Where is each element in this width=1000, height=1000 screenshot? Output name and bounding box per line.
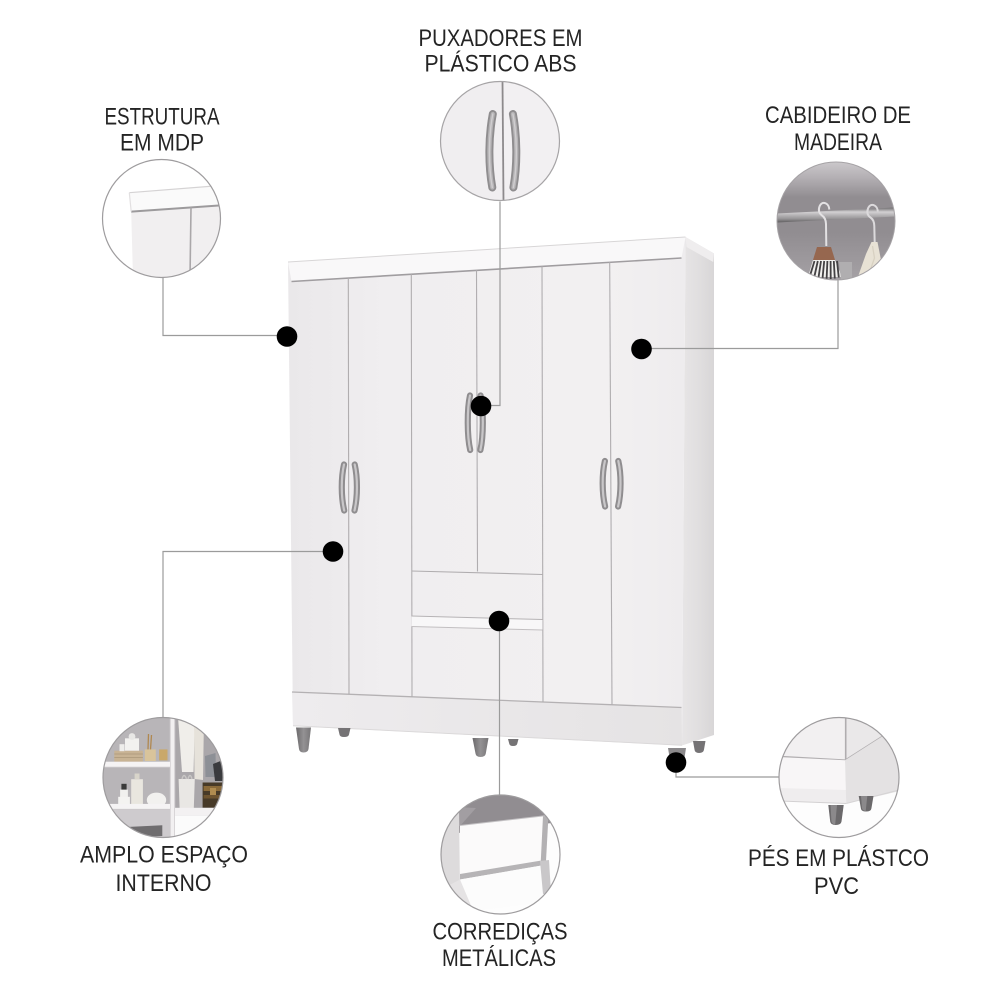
svg-text:PÉS EM PLÁSTCO: PÉS EM PLÁSTCO bbox=[748, 845, 929, 872]
svg-text:PVC: PVC bbox=[814, 873, 859, 900]
svg-text:PUXADORES EM: PUXADORES EM bbox=[419, 25, 583, 52]
svg-text:AMPLO ESPAÇO: AMPLO ESPAÇO bbox=[80, 842, 248, 869]
svg-text:CABIDEIRO DE: CABIDEIRO DE bbox=[765, 102, 911, 129]
svg-text:CORREDIÇAS: CORREDIÇAS bbox=[433, 919, 568, 946]
svg-text:EM MDP: EM MDP bbox=[120, 130, 204, 157]
svg-text:PLÁSTICO ABS: PLÁSTICO ABS bbox=[425, 51, 577, 78]
svg-text:ESTRUTURA: ESTRUTURA bbox=[105, 104, 220, 131]
svg-text:METÁLICAS: METÁLICAS bbox=[442, 945, 556, 972]
svg-text:MADEIRA: MADEIRA bbox=[794, 129, 882, 156]
svg-text:INTERNO: INTERNO bbox=[116, 870, 212, 897]
